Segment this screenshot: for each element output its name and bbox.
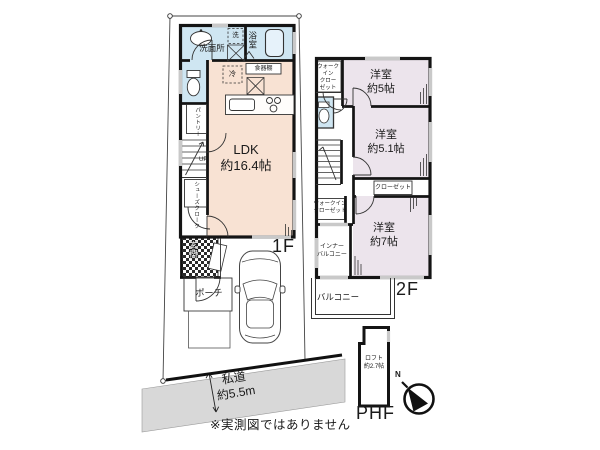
toilet1f-tank	[187, 71, 200, 78]
bath-label: 浴室	[247, 31, 257, 49]
balcony-label: バルコニー	[317, 293, 359, 303]
compass-needle-tail	[402, 382, 408, 388]
kitchen-sink	[230, 99, 255, 111]
approach-outline	[189, 311, 231, 348]
inner-balcony-line1: インナー	[320, 244, 344, 251]
bedroom51-size: 約5.1帖	[367, 143, 404, 156]
inner-balcony-line2: バルコニー	[317, 252, 347, 259]
bedroom51-room	[353, 106, 430, 178]
bedroom51-name: 洋室	[375, 129, 397, 142]
fridge-label: 冷	[229, 71, 236, 79]
disclaimer-note: ※実測図ではありません	[210, 418, 351, 432]
compass-north-label: N	[395, 370, 401, 379]
ldk-name: LDK	[233, 143, 258, 158]
wic-top-line4: ゼット	[320, 85, 337, 92]
stairs2f-arrow	[319, 147, 336, 180]
car-mirror-right	[280, 286, 285, 293]
car	[235, 251, 285, 343]
bedroom7-name: 洋室	[373, 222, 395, 235]
toilet2f-tank	[319, 102, 330, 108]
washroom-label: 洗面所	[199, 44, 225, 54]
closet-label: クローゼット	[375, 185, 411, 192]
floor2-label: 2F	[396, 279, 419, 300]
bedroom7-size: 約7帖	[370, 236, 398, 249]
bedroom5-name: 洋室	[370, 69, 392, 82]
toilet1f-bowl	[187, 78, 199, 96]
phf-label: PHF	[356, 403, 395, 424]
wic-mid-line2: クローゼット	[313, 208, 346, 215]
floor-plan-page: 洗面所 洗 浴室 冷 食器棚 パントリー UP シューズクローク 玄関 ポーチ …	[0, 0, 600, 450]
boundary-marker	[168, 14, 173, 19]
loft-name: ロフト	[365, 356, 383, 363]
car-mirror-left	[235, 286, 240, 293]
boundary-marker	[161, 379, 166, 384]
porch-label: ポーチ	[195, 288, 222, 298]
washbasin-faucet	[200, 29, 203, 32]
bedroom5-size: 約5帖	[367, 83, 395, 96]
pantry-label: パントリー	[193, 107, 200, 137]
washer-label: 洗	[232, 32, 239, 39]
shoe-closet-label: シューズクローク	[192, 181, 199, 229]
entrance-label: 玄関	[189, 241, 198, 258]
stairs-up-label: UP	[199, 157, 207, 164]
cupboard-label: 食器棚	[254, 66, 272, 73]
floor1-label: 1F	[272, 236, 295, 257]
compass	[402, 382, 434, 414]
bathtub	[266, 30, 284, 57]
loft-size: 約2.7帖	[364, 364, 384, 371]
ldk-size: 約16.4帖	[220, 159, 271, 174]
floor-plan-drawing	[0, 0, 600, 450]
toilet2f-bowl	[319, 109, 329, 123]
boundary-marker	[297, 14, 302, 19]
